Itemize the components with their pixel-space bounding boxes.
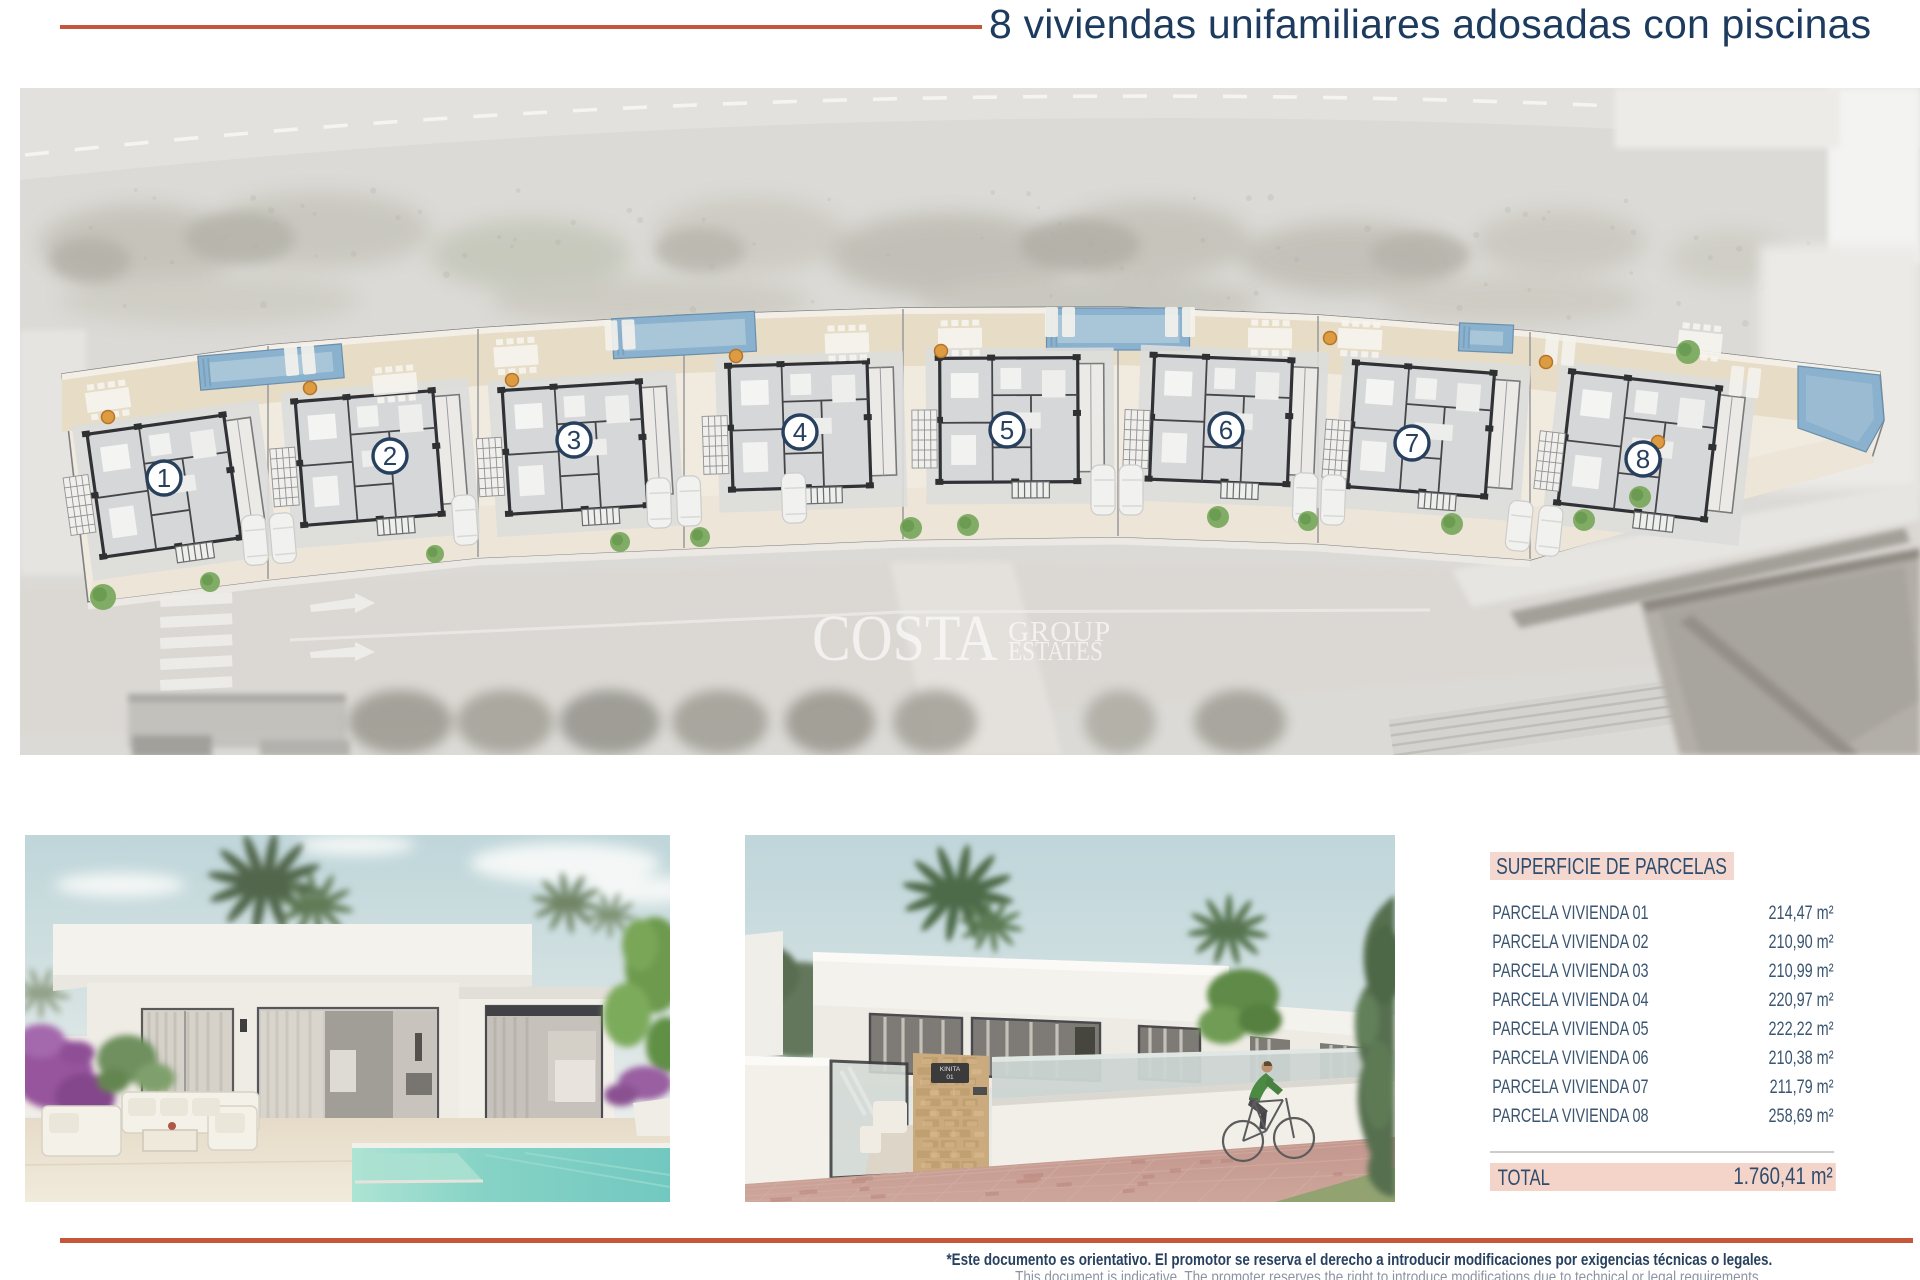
svg-text:3: 3 (567, 425, 581, 455)
svg-text:8: 8 (1636, 444, 1650, 474)
svg-text:KINITA: KINITA (940, 1066, 961, 1073)
svg-text:ESTATES: ESTATES (1008, 637, 1103, 666)
svg-text:4: 4 (793, 417, 807, 447)
svg-text:1: 1 (157, 463, 171, 493)
svg-text:01: 01 (946, 1074, 954, 1081)
svg-text:2: 2 (383, 441, 397, 471)
svg-text:7: 7 (1405, 428, 1419, 458)
svg-text:5: 5 (1000, 415, 1014, 445)
svg-text:COSTA: COSTA (812, 603, 998, 675)
svg-text:6: 6 (1219, 415, 1233, 445)
